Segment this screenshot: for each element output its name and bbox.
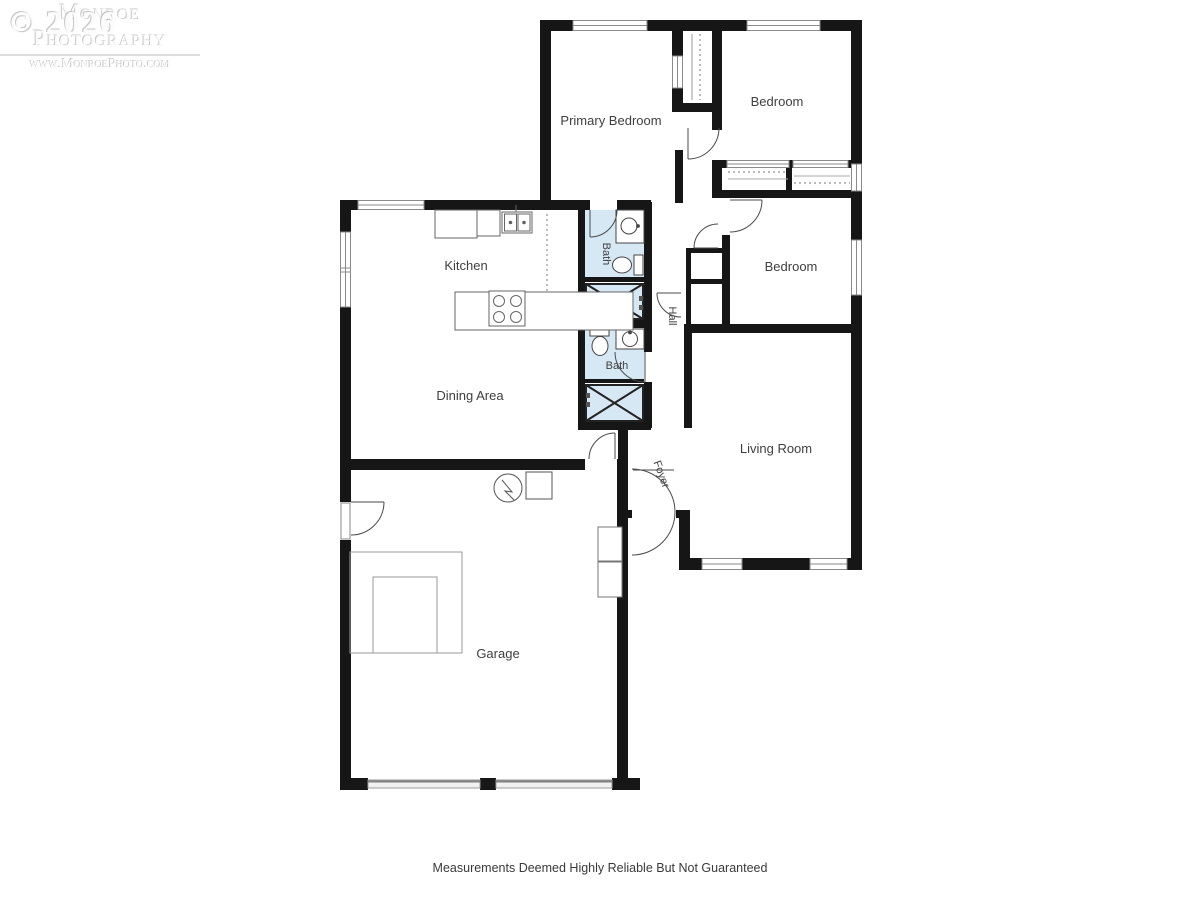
floor-plan-drawing: Primary Bedroom Bedroom Bedroom Kitchen …	[0, 0, 1200, 900]
stove-icon	[489, 291, 525, 326]
workbench-outline	[350, 552, 462, 653]
disclaimer-text: Measurements Deemed Highly Reliable But …	[0, 861, 1200, 875]
sliding-door	[673, 56, 683, 88]
room-label-primary-bedroom: Primary Bedroom	[560, 113, 661, 128]
sink-icon	[616, 329, 644, 349]
washer-dryer-icon	[598, 527, 622, 597]
room-label-bedroom-middle: Bedroom	[765, 259, 818, 274]
furnace-icon	[526, 472, 552, 499]
window	[341, 232, 351, 307]
door-dining	[589, 433, 615, 459]
room-label-bedroom-top: Bedroom	[751, 94, 804, 109]
room-label-bath-lower: Bath	[606, 360, 629, 372]
window	[852, 164, 862, 191]
garage-door	[368, 780, 480, 788]
window	[810, 559, 847, 570]
door-bedroom-middle	[730, 200, 762, 232]
window	[852, 240, 862, 295]
window	[358, 201, 424, 210]
garage-fixtures	[350, 472, 622, 788]
door-garage-side	[341, 502, 384, 539]
room-label-garage: Garage	[476, 646, 519, 661]
garage-door	[496, 780, 612, 788]
window	[573, 21, 647, 31]
room-label-dining: Dining Area	[436, 388, 504, 403]
sink-icon	[616, 210, 644, 243]
fridge-icon	[435, 210, 477, 238]
water-heater-icon	[494, 474, 522, 502]
door-bedroom-top	[688, 128, 719, 159]
floor-plan-page: Primary Bedroom Bedroom Bedroom Kitchen …	[0, 0, 1200, 900]
room-label-hall: Hall	[666, 307, 678, 326]
room-label-living: Living Room	[740, 441, 812, 456]
door-hall-nook	[694, 224, 718, 248]
upper-cabinet-outline	[547, 214, 578, 293]
room-label-kitchen: Kitchen	[444, 258, 487, 273]
sliding-door	[727, 161, 789, 168]
sliding-door	[793, 161, 848, 168]
copyright-watermark: © 2026	[10, 4, 118, 41]
room-label-bath-upper: Bath	[600, 243, 612, 266]
kitchen-island	[455, 292, 633, 330]
window	[702, 559, 742, 570]
window	[747, 21, 820, 31]
